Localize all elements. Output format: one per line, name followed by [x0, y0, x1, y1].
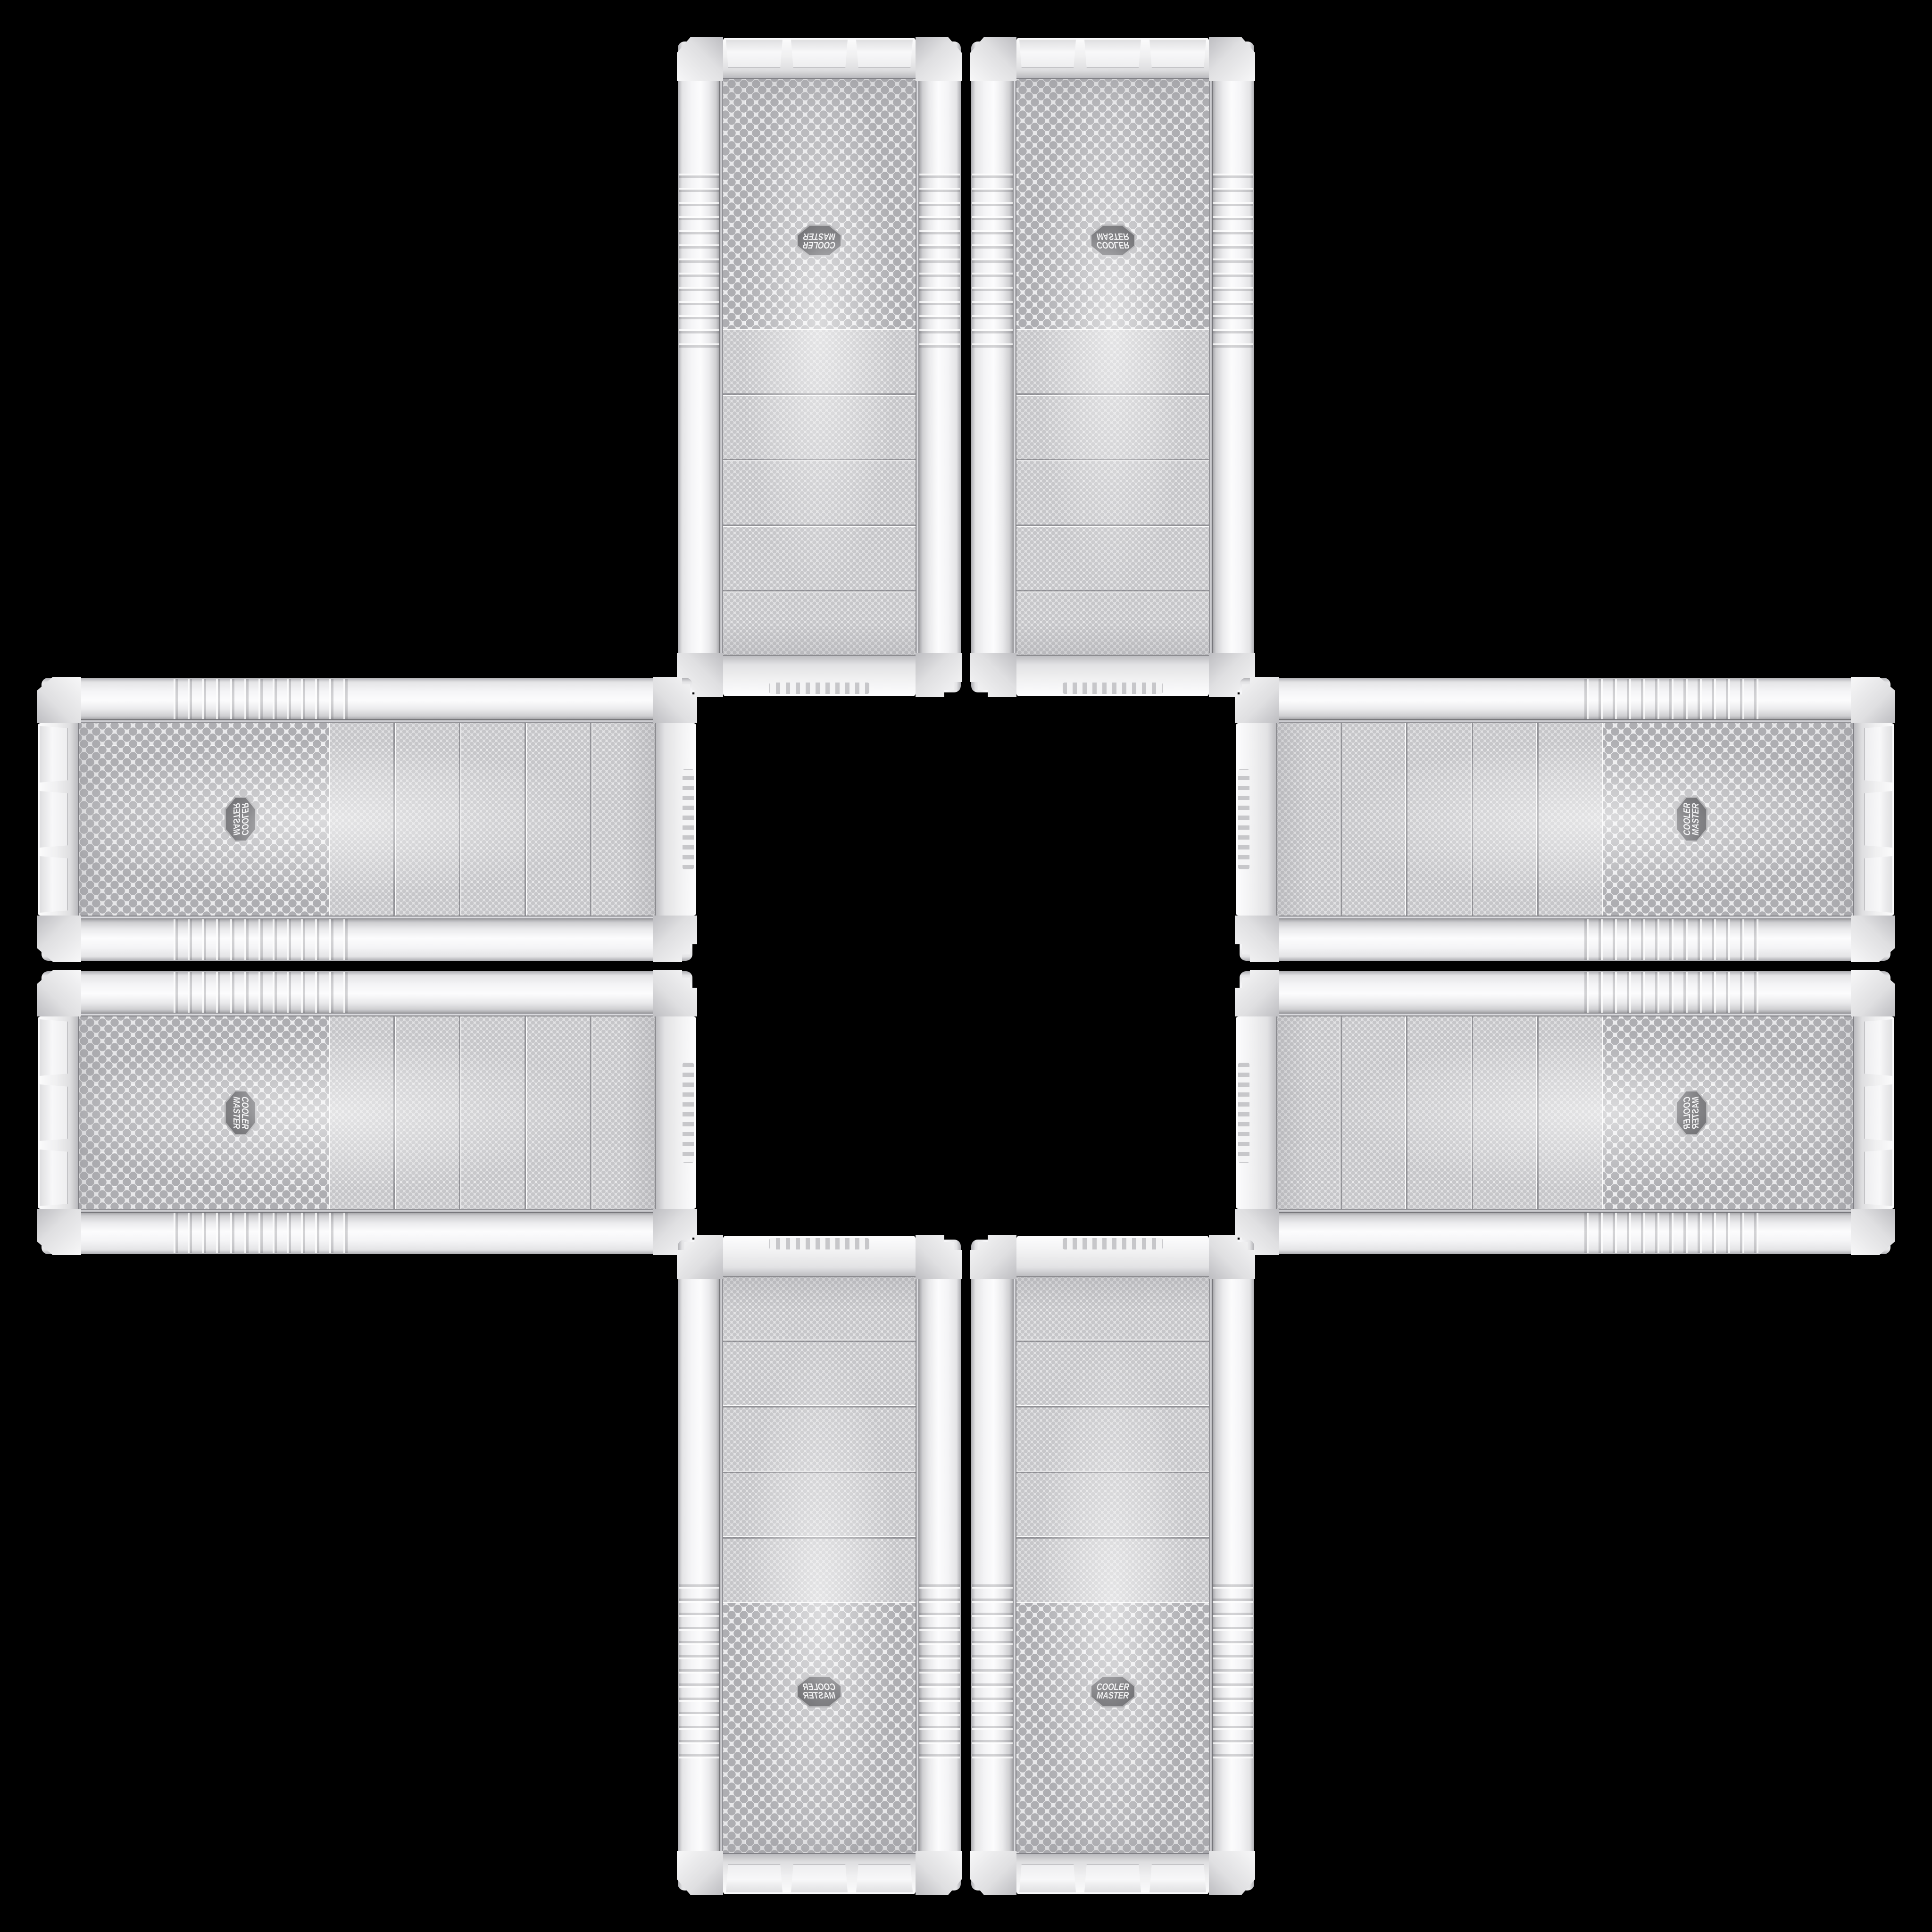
case-front-panel: COOLER MASTER	[1236, 678, 1894, 961]
cooler-master-badge-icon: COOLER MASTER	[797, 225, 842, 257]
cap-tab	[1149, 1864, 1206, 1892]
panel-slot-left-bottom: COOLER MASTER	[38, 971, 696, 1254]
chrome-trim-left	[1013, 1241, 1016, 1889]
panel-slot-right-bottom: COOLER MASTER	[1236, 971, 1894, 1254]
cap-tab	[40, 1019, 68, 1076]
chrome-trim-left	[1013, 43, 1016, 691]
cap-bottom	[38, 723, 78, 916]
chrome-trim-right	[1209, 1241, 1213, 1889]
chrome-trim-right	[43, 1209, 691, 1213]
side-rail-left	[1240, 917, 1890, 961]
cap-tab	[40, 726, 68, 783]
badge-text-line2: MASTER	[1096, 231, 1129, 241]
grip-ribs	[1584, 679, 1766, 720]
badge-text-line2: MASTER	[1096, 1690, 1129, 1700]
cap-bottom	[1016, 38, 1209, 78]
badge-core: COOLER MASTER	[226, 1091, 255, 1134]
mesh-logo-area: COOLER MASTER	[723, 1603, 916, 1854]
chrome-trim-right	[719, 43, 723, 691]
cap-tab	[726, 40, 783, 68]
cap-tab	[791, 40, 848, 68]
chrome-trim-left	[43, 916, 691, 919]
badge-text-line2: MASTER	[231, 803, 241, 835]
cap-tab	[1149, 40, 1206, 68]
cap-top	[1016, 656, 1209, 696]
cap-bottom	[1854, 1016, 1894, 1209]
grip-ribs	[679, 165, 720, 347]
cap-tab	[1084, 1864, 1141, 1892]
mesh-front: COOLER MASTER	[1016, 78, 1209, 656]
mesh-logo-area: COOLER MASTER	[1016, 1603, 1209, 1854]
side-rail-left	[971, 1240, 1015, 1890]
cap-bottom	[723, 1854, 916, 1894]
grip-ribs	[1584, 972, 1766, 1014]
cap-tab	[1864, 1084, 1892, 1141]
case-front-panel: COOLER MASTER	[971, 38, 1254, 696]
drive-bay-covers	[329, 1016, 656, 1209]
panel-slot-bottom-right: COOLER MASTER	[971, 1236, 1254, 1894]
drive-bay-covers	[1276, 1016, 1603, 1209]
side-rail-right	[678, 1240, 721, 1890]
mesh-logo-area: COOLER MASTER	[78, 723, 329, 916]
mesh-front: COOLER MASTER	[1276, 723, 1854, 916]
cap-serration	[769, 1238, 869, 1249]
drive-bay-covers	[723, 329, 916, 656]
mesh-front: COOLER MASTER	[723, 78, 916, 656]
cooler-master-badge-icon: COOLER MASTER	[1090, 1675, 1135, 1707]
mesh-front: COOLER MASTER	[723, 1276, 916, 1854]
cap-serration	[683, 1063, 694, 1163]
cap-tab	[1019, 1864, 1076, 1892]
mesh-front: COOLER MASTER	[1276, 1016, 1854, 1209]
panel-slot-top-left: COOLER MASTER	[678, 38, 961, 696]
grip-ribs	[1584, 1212, 1766, 1253]
side-rail-right	[1211, 1240, 1254, 1890]
panel-slot-left-top: COOLER MASTER	[38, 678, 696, 961]
cap-tab	[1084, 40, 1141, 68]
grip-ribs	[165, 1212, 347, 1253]
cap-tab	[40, 1149, 68, 1206]
cooler-master-badge-icon: COOLER MASTER	[1090, 225, 1135, 257]
cap-top	[723, 656, 916, 696]
drive-bay-covers	[723, 1276, 916, 1603]
grip-ribs	[972, 1584, 1014, 1766]
side-rail-left	[917, 1240, 961, 1890]
chrome-trim-right	[1241, 719, 1889, 723]
badge-text-line2: MASTER	[803, 231, 835, 241]
grip-ribs	[1212, 165, 1253, 347]
case-front-panel: COOLER MASTER	[1236, 971, 1894, 1254]
side-rail-right	[42, 1211, 692, 1254]
grip-ribs	[1584, 918, 1766, 960]
cap-tab	[40, 791, 68, 848]
cap-tab	[1864, 1019, 1892, 1076]
badge-core: COOLER MASTER	[1091, 226, 1134, 255]
cap-tab	[40, 856, 68, 913]
cap-tab	[1864, 1149, 1892, 1206]
cooler-master-badge-icon: COOLER MASTER	[797, 1675, 842, 1707]
grip-ribs	[918, 1584, 960, 1766]
chrome-trim-right	[719, 1241, 723, 1889]
mesh-front: COOLER MASTER	[78, 723, 656, 916]
mesh-front: COOLER MASTER	[1016, 1276, 1209, 1854]
grip-ribs	[165, 679, 347, 720]
side-rail-left	[1240, 971, 1890, 1015]
side-rail-left	[917, 42, 961, 692]
grip-ribs	[918, 165, 960, 347]
cooler-master-badge-icon: COOLER MASTER	[225, 797, 257, 842]
side-rail-right	[1211, 42, 1254, 692]
cap-serration	[1063, 1238, 1163, 1249]
drive-bay-covers	[329, 723, 656, 916]
side-rail-left	[971, 42, 1015, 692]
cap-bottom	[723, 38, 916, 78]
side-rail-right	[678, 42, 721, 692]
panel-slot-bottom-left: COOLER MASTER	[678, 1236, 961, 1894]
badge-text-line2: MASTER	[1690, 1096, 1700, 1129]
cap-tab	[1864, 791, 1892, 848]
cap-tab	[1019, 40, 1076, 68]
cap-top	[723, 1236, 916, 1276]
chrome-trim-left	[916, 43, 919, 691]
cooler-master-badge-icon: COOLER MASTER	[1675, 797, 1707, 842]
cap-tab	[1864, 856, 1892, 913]
badge-core: COOLER MASTER	[1091, 1677, 1134, 1706]
side-rail-right	[42, 678, 692, 721]
panel-slot-top-right: COOLER MASTER	[971, 38, 1254, 696]
drive-bay-covers	[1016, 1276, 1209, 1603]
badge-text-line2: MASTER	[803, 1690, 835, 1700]
chrome-trim-left	[1241, 916, 1889, 919]
cap-serration	[1238, 769, 1249, 869]
mesh-logo-area: COOLER MASTER	[1016, 78, 1209, 329]
cap-serration	[683, 769, 694, 869]
grip-ribs	[679, 1584, 720, 1766]
badge-text-line2: MASTER	[1690, 803, 1700, 835]
cap-top	[656, 723, 696, 916]
grip-ribs	[165, 972, 347, 1014]
grip-ribs	[165, 918, 347, 960]
cap-tab	[726, 1864, 783, 1892]
cap-top	[1016, 1236, 1209, 1276]
panel-slot-right-top: COOLER MASTER	[1236, 678, 1894, 961]
side-rail-right	[1240, 1211, 1890, 1254]
cap-tab	[856, 40, 913, 68]
mesh-logo-area: COOLER MASTER	[1603, 723, 1854, 916]
cap-top	[1236, 723, 1276, 916]
grip-ribs	[1212, 1584, 1253, 1766]
chrome-trim-left	[916, 1241, 919, 1889]
mesh-front: COOLER MASTER	[78, 1016, 656, 1209]
cap-tab	[856, 1864, 913, 1892]
chrome-trim-left	[43, 1013, 691, 1016]
badge-text-line2: MASTER	[231, 1096, 241, 1129]
badge-core: COOLER MASTER	[226, 798, 255, 841]
side-rail-left	[42, 917, 692, 961]
case-front-panel: COOLER MASTER	[678, 1236, 961, 1894]
cooler-master-badge-icon: COOLER MASTER	[1675, 1090, 1707, 1135]
cooler-master-badge-icon: COOLER MASTER	[225, 1090, 257, 1135]
grip-ribs	[972, 165, 1014, 347]
chrome-trim-right	[1209, 43, 1213, 691]
mesh-logo-area: COOLER MASTER	[1603, 1016, 1854, 1209]
mesh-logo-area: COOLER MASTER	[723, 78, 916, 329]
side-rail-right	[1240, 678, 1890, 721]
drive-bay-covers	[1016, 329, 1209, 656]
cap-serration	[1063, 683, 1163, 694]
chrome-trim-right	[43, 719, 691, 723]
cap-bottom	[1854, 723, 1894, 916]
badge-core: COOLER MASTER	[1677, 798, 1706, 841]
chrome-trim-right	[1241, 1209, 1889, 1213]
case-front-panel: COOLER MASTER	[38, 678, 696, 961]
cap-top	[1236, 1016, 1276, 1209]
photo-canvas: COOLER MASTER	[0, 0, 1932, 1932]
cap-tab	[1864, 726, 1892, 783]
cap-serration	[769, 683, 869, 694]
case-front-panel: COOLER MASTER	[678, 38, 961, 696]
case-front-panel: COOLER MASTER	[971, 1236, 1254, 1894]
side-rail-left	[42, 971, 692, 1015]
cap-tab	[40, 1084, 68, 1141]
cap-bottom	[38, 1016, 78, 1209]
cap-top	[656, 1016, 696, 1209]
cap-bottom	[1016, 1854, 1209, 1894]
mesh-logo-area: COOLER MASTER	[78, 1016, 329, 1209]
cap-serration	[1238, 1063, 1249, 1163]
cap-tab	[791, 1864, 848, 1892]
badge-core: COOLER MASTER	[1677, 1091, 1706, 1134]
chrome-trim-left	[1241, 1013, 1889, 1016]
case-front-panel: COOLER MASTER	[38, 971, 696, 1254]
drive-bay-covers	[1276, 723, 1603, 916]
badge-core: COOLER MASTER	[798, 1677, 841, 1706]
badge-core: COOLER MASTER	[798, 226, 841, 255]
